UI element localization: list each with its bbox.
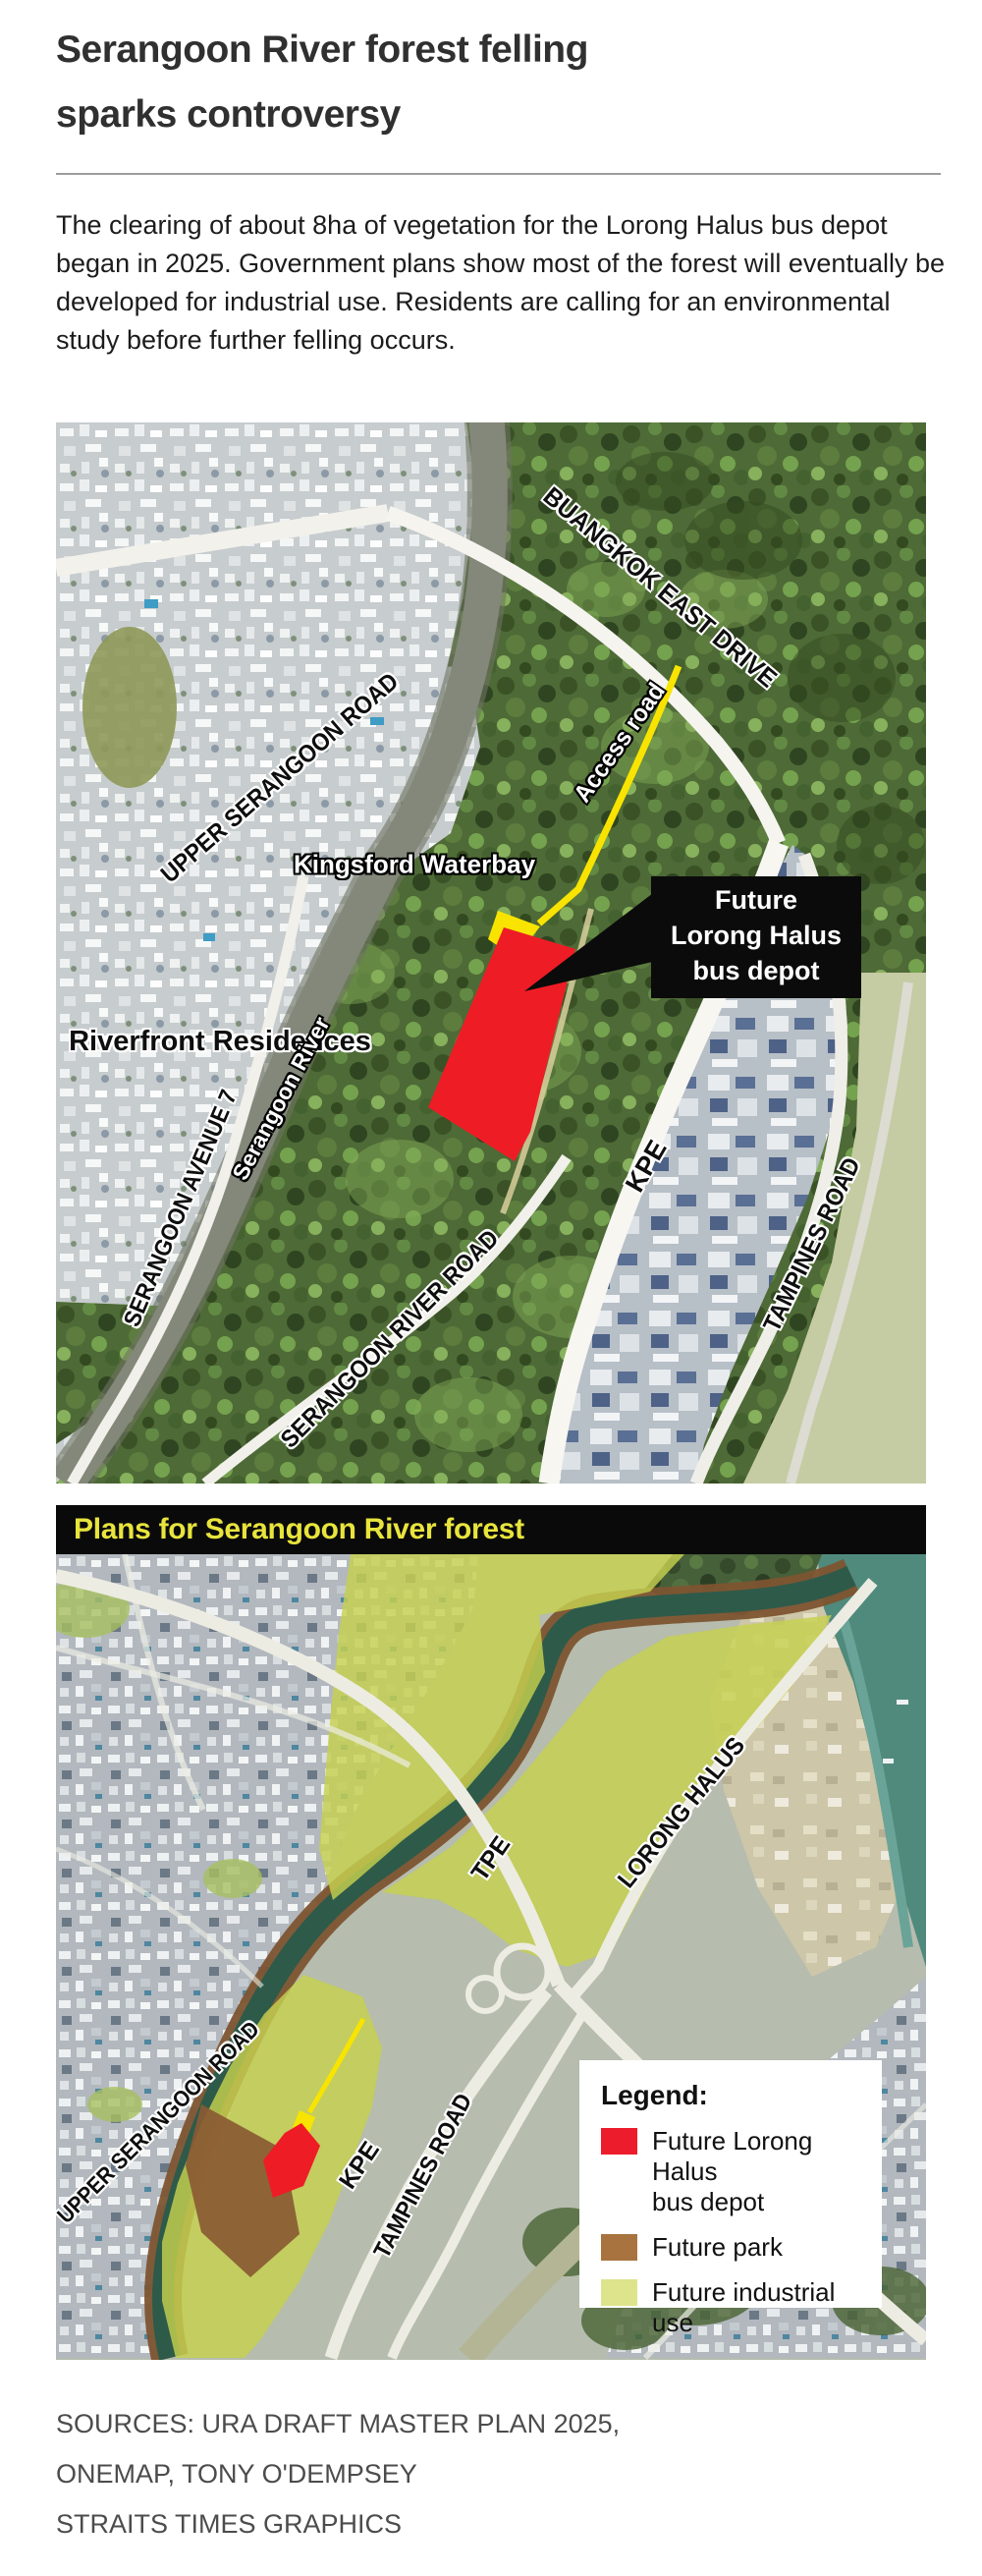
plans-map-title: Plans for Serangoon River forest <box>74 1513 524 1546</box>
legend-item-park: Future park <box>601 2232 860 2263</box>
plans-map-title-bar: Plans for Serangoon River forest <box>56 1505 926 1554</box>
infographic-page: Serangoon River forest felling sparks co… <box>0 0 982 2576</box>
legend-title: Legend: <box>601 2080 860 2111</box>
pond <box>82 627 177 788</box>
sources-credit: SOURCES: URA DRAFT MASTER PLAN 2025, ONE… <box>56 2399 620 2549</box>
sources-line: SOURCES: URA DRAFT MASTER PLAN 2025, <box>56 2399 620 2449</box>
legend-label-industrial: Future industrial use <box>652 2277 860 2338</box>
plans-map-section: Plans for Serangoon River forest <box>56 1505 926 2360</box>
intro-paragraph: The clearing of about 8ha of vegetation … <box>56 206 945 360</box>
legend-label-bus-depot: Future Lorong Halus bus depot <box>652 2126 860 2217</box>
page-title: Serangoon River forest felling sparks co… <box>56 18 940 147</box>
legend-label-park: Future park <box>652 2232 783 2263</box>
map-legend: Legend: Future Lorong Halus bus depot Fu… <box>579 2060 882 2308</box>
legend-item-bus-depot: Future Lorong Halus bus depot <box>601 2126 860 2217</box>
legend-swatch-park <box>601 2234 637 2261</box>
plans-map-body: TPE LORONG HALUS UPPER SERANGOON ROAD KP… <box>56 1554 926 2360</box>
satellite-map-current: Future Lorong Halus bus depot BUANGKOK E… <box>56 422 926 1484</box>
legend-item-industrial: Future industrial use <box>601 2277 860 2338</box>
divider-rule <box>56 173 941 175</box>
sources-line: ONEMAP, TONY O'DEMPSEY <box>56 2449 620 2499</box>
sources-line: STRAITS TIMES GRAPHICS <box>56 2499 620 2549</box>
legend-swatch-industrial <box>601 2279 637 2306</box>
legend-swatch-bus-depot <box>601 2128 637 2155</box>
bus-depot-callout: Future Lorong Halus bus depot <box>651 876 861 998</box>
label-kingsford-waterbay: Kingsford Waterbay <box>294 851 535 877</box>
